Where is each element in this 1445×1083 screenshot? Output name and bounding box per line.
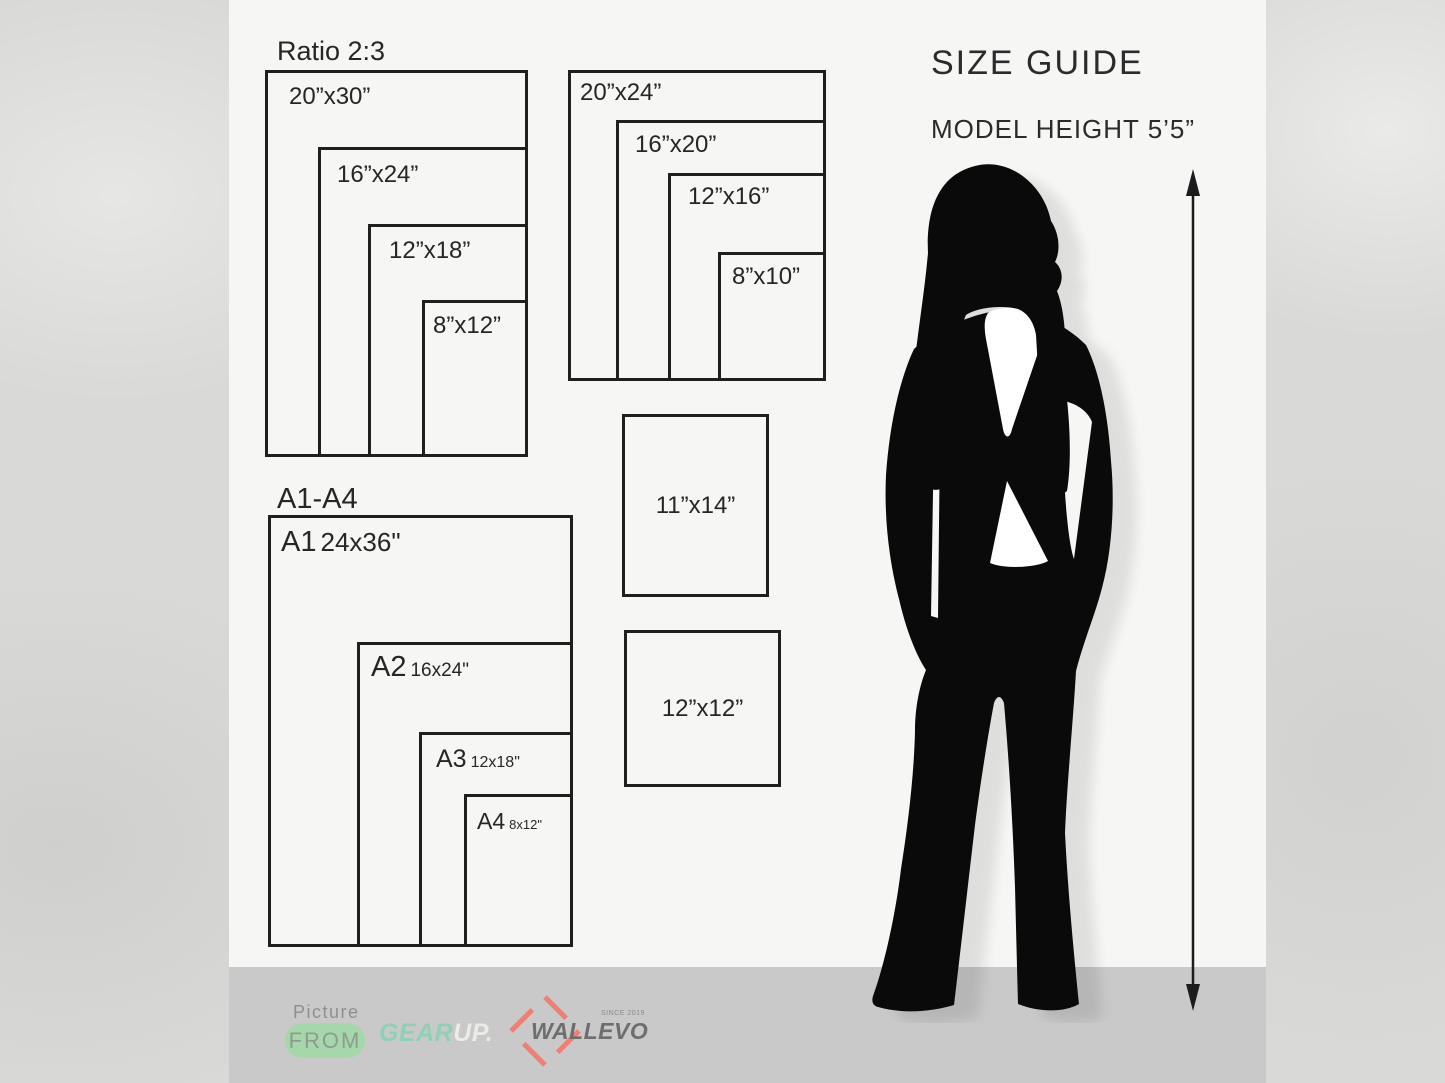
arrow-head-top — [1186, 169, 1200, 196]
gearup-logo-gear: GEAR — [379, 1019, 453, 1047]
model-silhouette — [858, 163, 1163, 1023]
arrow-head-bottom — [1186, 984, 1200, 1011]
size-guide-heading: SIZE GUIDE — [931, 44, 1144, 83]
size-guide-infographic: Ratio 2:3 20”x30” 16”x24” 12”x18” 8”x12”… — [0, 0, 1445, 1083]
wallevo-since-text: SINCE 2019 — [601, 1010, 645, 1017]
ratio-2-3-title: Ratio 2:3 — [277, 36, 385, 67]
a1-code: A1 — [281, 528, 316, 557]
size-label-a1: A1 24x36" — [281, 528, 401, 557]
a2-code: A2 — [371, 653, 406, 682]
size-label-a2: A2 16x24" — [371, 653, 469, 682]
gearup-logo-up: UP. — [453, 1019, 493, 1047]
size-box-11x14in: 11”x14” — [622, 414, 769, 597]
size-label-12x12in: 12”x12” — [662, 695, 743, 723]
size-label-8x12in: 8”x12” — [433, 313, 501, 339]
wallevo-logo: SINCE 2019 WALLEVO — [505, 994, 645, 1068]
gearup-logo: GEARUP. — [379, 1019, 493, 1048]
size-label-8x10in: 8”x10” — [732, 264, 800, 290]
from-badge: FROM — [285, 1023, 365, 1058]
a4-code: A4 — [477, 810, 505, 833]
a4-size: 8x12" — [509, 818, 542, 831]
from-label: FROM — [289, 1028, 362, 1054]
height-measure-arrow — [1180, 166, 1206, 1014]
model-silhouette-svg — [858, 163, 1163, 1023]
model-height-text: MODEL HEIGHT 5’5” — [931, 114, 1195, 145]
a-series-title: A1-A4 — [277, 483, 358, 516]
height-arrow-svg — [1180, 166, 1206, 1014]
size-label-16x24in: 16”x24” — [337, 162, 418, 188]
a3-code: A3 — [436, 747, 467, 772]
size-label-11x14in: 11”x14” — [656, 492, 736, 520]
size-label-20x30in: 20”x30” — [289, 84, 370, 110]
a2-size: 16x24" — [410, 661, 469, 680]
size-label-16x20in: 16”x20” — [635, 132, 716, 158]
size-label-12x16in: 12”x16” — [688, 184, 769, 210]
size-label-20x24in: 20”x24” — [580, 80, 661, 106]
wallevo-name-text: WALLEVO — [531, 1018, 648, 1045]
a1-size: 24x36" — [320, 529, 400, 555]
size-label-12x18in: 12”x18” — [389, 238, 470, 264]
size-box-12x12in: 12”x12” — [624, 630, 781, 787]
picture-label: Picture — [293, 1002, 360, 1023]
size-label-a4: A4 8x12" — [477, 810, 542, 833]
size-label-a3: A3 12x18" — [436, 747, 520, 772]
a3-size: 12x18" — [471, 755, 520, 771]
